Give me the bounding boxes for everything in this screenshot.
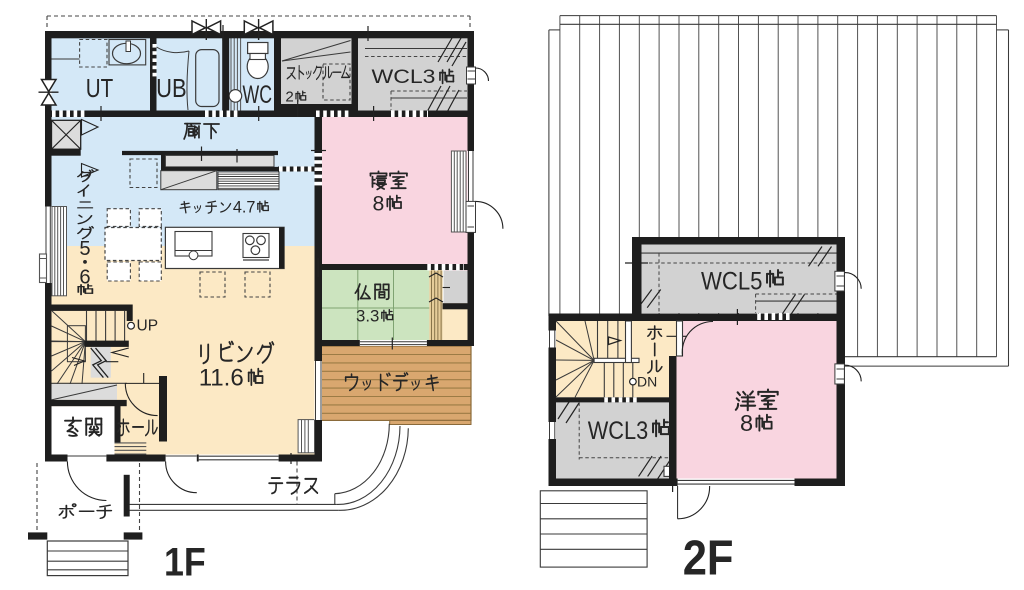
svg-text:DN: DN	[637, 373, 657, 389]
svg-text:UT: UT	[86, 73, 114, 103]
svg-text:UP: UP	[137, 317, 159, 334]
svg-text:4.7: 4.7	[233, 198, 256, 216]
svg-text:8: 8	[740, 410, 753, 436]
svg-text:WC: WC	[243, 81, 273, 109]
svg-text:WCL3: WCL3	[588, 417, 649, 445]
svg-text:2: 2	[285, 89, 293, 106]
svg-text:2F: 2F	[683, 532, 734, 586]
svg-text:UB: UB	[156, 73, 187, 103]
svg-text:WCL5: WCL5	[701, 268, 763, 296]
svg-text:8: 8	[373, 191, 385, 215]
svg-text:1F: 1F	[164, 541, 206, 585]
svg-text:WCL3: WCL3	[372, 66, 436, 88]
svg-text:3.3: 3.3	[356, 306, 379, 325]
svg-text:5: 5	[79, 238, 90, 260]
svg-text:11.6: 11.6	[199, 365, 244, 392]
